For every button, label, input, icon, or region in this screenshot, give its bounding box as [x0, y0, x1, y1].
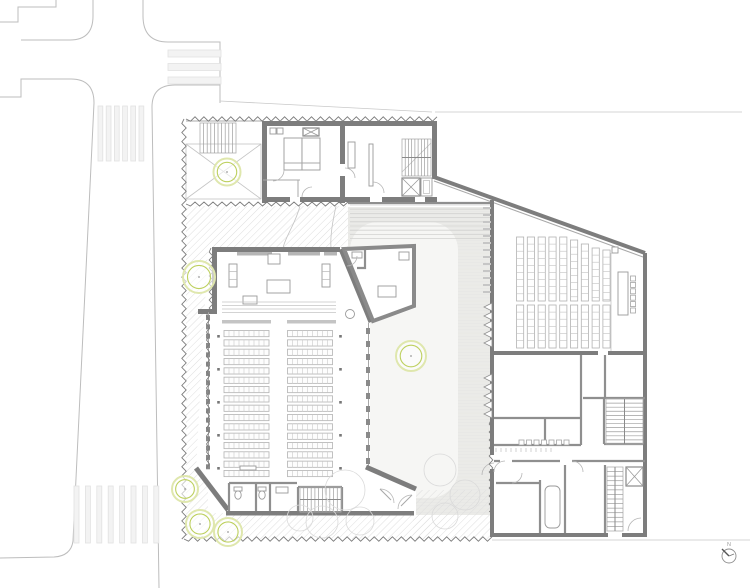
pew-row	[288, 358, 333, 364]
chapel-table	[378, 286, 396, 297]
crosswalk-stripe	[168, 77, 221, 84]
chair	[631, 295, 636, 300]
tree-trunk-dot	[226, 171, 228, 173]
counter-unit	[557, 440, 562, 445]
pew-row	[288, 331, 333, 337]
door-gap	[290, 197, 300, 202]
wc-cubicle-2	[302, 138, 320, 170]
louver-bar	[483, 284, 491, 286]
wall-window-dash	[366, 328, 370, 334]
pew-row	[224, 470, 269, 476]
door-arc	[373, 182, 384, 193]
seat-column	[549, 237, 556, 301]
tree-trunk-dot	[410, 355, 412, 357]
sink-2	[277, 128, 283, 134]
louver-bar	[483, 249, 491, 251]
louver-bar	[483, 235, 491, 237]
louver-bar	[483, 270, 491, 272]
pew-row	[288, 377, 333, 383]
chair	[631, 289, 636, 294]
wall-mid	[340, 121, 345, 203]
crosswalk-stripe	[85, 486, 90, 543]
floor-plan-canvas: N	[0, 0, 750, 588]
wall-bench-end	[324, 252, 337, 256]
chair	[631, 308, 636, 313]
pew-row	[224, 414, 269, 420]
column-dot	[339, 335, 342, 338]
seat-column	[560, 237, 567, 301]
louver-bar	[483, 214, 491, 216]
door-arc	[345, 168, 355, 178]
pew-row	[224, 386, 269, 392]
crosswalk-stripe	[154, 486, 159, 543]
pulpit	[268, 254, 280, 264]
counter-unit	[549, 440, 554, 445]
pew-row	[288, 405, 333, 411]
louver-bar	[483, 256, 491, 258]
column-dot	[217, 434, 220, 437]
louver-bar	[483, 207, 491, 209]
rail-right	[287, 320, 336, 324]
north-label: N	[727, 542, 731, 548]
louver-bar	[483, 291, 491, 293]
column-dot	[339, 368, 342, 371]
chair	[631, 276, 636, 281]
seat-column	[603, 250, 610, 301]
pew-row	[224, 349, 269, 355]
pew-row	[288, 470, 333, 476]
wall-window-dash	[366, 432, 370, 438]
column-marker	[612, 247, 618, 253]
credence-table	[243, 296, 257, 304]
toilet-2	[259, 491, 265, 499]
door-gap	[415, 197, 425, 202]
column-dot	[217, 467, 220, 470]
pew-row	[288, 424, 333, 430]
shaft-slot	[369, 144, 373, 186]
kitchenette-counter	[519, 440, 569, 445]
pew-row	[224, 340, 269, 346]
street-block-edge-nw	[0, 0, 56, 22]
counter-unit	[564, 440, 569, 445]
pew-row	[288, 349, 333, 355]
counter-unit	[542, 440, 547, 445]
pew-row	[288, 452, 333, 458]
door-gap	[560, 459, 572, 463]
pew-row	[288, 386, 333, 392]
seat-column	[527, 237, 534, 301]
wall-bench-right	[288, 252, 320, 256]
pew-row	[224, 331, 269, 337]
door-arc	[273, 170, 284, 181]
pew-row	[224, 424, 269, 430]
sink-1	[270, 128, 276, 134]
wc-cubicle-1	[284, 138, 302, 170]
crosswalk-stripe	[114, 106, 119, 161]
door-gap	[340, 164, 345, 176]
seat-column	[517, 237, 524, 301]
louver-bar	[483, 277, 491, 279]
column-dot	[339, 401, 342, 404]
wall-window-dash	[366, 367, 370, 373]
louver-bar	[483, 221, 491, 223]
presider-bench	[322, 264, 330, 287]
tree-trunk-dot	[199, 523, 201, 525]
column-dot	[339, 467, 342, 470]
wall-window-dash	[366, 354, 370, 360]
pew-row	[288, 433, 333, 439]
pew-row	[224, 452, 269, 458]
column-dot	[217, 368, 220, 371]
north-arrow-hand-short	[729, 554, 734, 556]
seat-column	[571, 240, 578, 301]
pew-row	[224, 433, 269, 439]
crosswalk-stripe	[168, 50, 221, 57]
crosswalk-stripe	[74, 486, 79, 543]
wc-partition-walls	[263, 180, 300, 197]
door-arc	[572, 461, 583, 472]
pew-row	[224, 377, 269, 383]
pew-row	[288, 442, 333, 448]
pew-row	[224, 405, 269, 411]
nave-north-wall	[216, 247, 340, 252]
bench-entry	[240, 466, 256, 470]
pew-row	[288, 414, 333, 420]
column-dot	[217, 335, 220, 338]
serrated-edge	[186, 202, 348, 206]
closet	[348, 142, 355, 168]
louver-bar	[483, 228, 491, 230]
east-wall	[643, 253, 647, 537]
chair	[631, 302, 636, 307]
pew-row	[288, 461, 333, 467]
crosswalk-stripe	[123, 106, 128, 161]
chapel-cabinet-2	[399, 252, 409, 260]
column-dot	[339, 434, 342, 437]
crosswalk-stripe	[139, 106, 144, 161]
crosswalk-stripe	[168, 64, 221, 71]
pew-row	[288, 340, 333, 346]
south-wall-east-volume	[494, 533, 645, 537]
pew-row	[288, 368, 333, 374]
wall-east-band	[432, 121, 437, 179]
north-wall	[262, 121, 437, 126]
louver-bar	[483, 242, 491, 244]
altar-table	[267, 280, 290, 293]
washbasin	[276, 487, 288, 493]
crosswalk-stripe	[106, 106, 111, 161]
door-arc	[302, 187, 312, 197]
crosswalk-stripe	[97, 486, 102, 543]
entry-canopy-hatch	[186, 206, 348, 248]
seat-column	[592, 248, 599, 301]
step-ticks	[496, 448, 551, 452]
crosswalk-stripe	[131, 486, 136, 543]
door-gap	[370, 197, 382, 202]
floor-plan-page: N	[0, 0, 750, 588]
street-curb-sw	[0, 79, 94, 558]
wall-window-dash	[366, 445, 370, 451]
street-curb-nw	[21, 0, 93, 40]
door-gap	[500, 459, 512, 463]
door-gap	[598, 351, 608, 355]
exit-door-arc	[628, 518, 641, 531]
crosswalk-stripe	[142, 486, 147, 543]
pew-row	[288, 396, 333, 402]
crosswalk-stripe	[120, 486, 125, 543]
wall-window-dash	[206, 464, 210, 469]
rail-left	[222, 320, 271, 324]
counter-unit	[519, 440, 524, 445]
pew-row	[224, 368, 269, 374]
crosswalk-stripe	[108, 486, 113, 543]
wall-window-dash	[366, 380, 370, 386]
classroom-walls	[494, 355, 581, 445]
pew-row	[224, 358, 269, 364]
toilet-1	[235, 491, 241, 499]
pew-row	[224, 442, 269, 448]
tree-trunk-dot	[227, 531, 229, 533]
sidewalk-line	[220, 101, 432, 112]
column-dot	[217, 401, 220, 404]
hall-seating	[517, 237, 611, 348]
wall-window-dash	[366, 393, 370, 399]
door-arc	[512, 473, 522, 483]
wall-window-dash	[366, 341, 370, 347]
counter-unit	[534, 440, 539, 445]
louver-bar	[483, 263, 491, 265]
wall-bench-left	[237, 252, 272, 256]
stair-room-walls	[583, 355, 645, 444]
wall-courtyard-east	[262, 121, 267, 203]
baptismal-font	[346, 310, 355, 319]
seat-column	[538, 237, 545, 301]
wall-window-dash	[366, 406, 370, 412]
tree-trunk-dot	[198, 276, 200, 278]
band-south-wall	[262, 197, 437, 202]
chair	[631, 282, 636, 287]
hall-south-wall	[494, 351, 645, 355]
pew-row	[224, 396, 269, 402]
cistern-2	[258, 487, 266, 491]
tree-trunk-dot	[184, 488, 186, 490]
cistern-1	[234, 487, 242, 491]
crosswalk-stripe	[131, 106, 136, 161]
wall-window-dash	[366, 419, 370, 425]
presider-bench	[229, 264, 237, 287]
speakers-table	[618, 272, 628, 315]
ramp-lift	[545, 486, 560, 528]
door-gap	[608, 533, 622, 537]
crosswalk-stripe	[98, 106, 103, 161]
table-chairs	[631, 276, 636, 313]
wall-window-dash	[366, 458, 370, 464]
north-arrow: N	[722, 542, 736, 563]
counter-unit	[527, 440, 532, 445]
